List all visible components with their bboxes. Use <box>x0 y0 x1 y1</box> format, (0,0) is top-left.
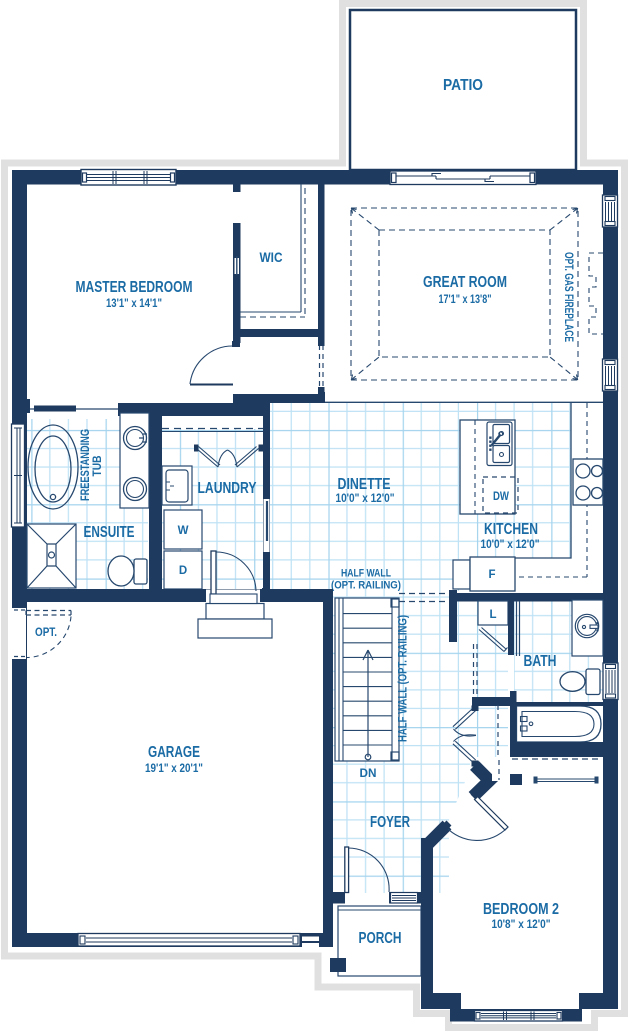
svg-text:F: F <box>488 569 495 581</box>
svg-text:OPT.: OPT. <box>35 627 57 639</box>
svg-text:10'0" x 12'0": 10'0" x 12'0" <box>481 539 540 551</box>
svg-text:DINETTE: DINETTE <box>338 476 391 493</box>
svg-text:PATIO: PATIO <box>443 77 483 94</box>
svg-text:D: D <box>179 565 187 577</box>
svg-text:FOYER: FOYER <box>370 814 410 831</box>
svg-text:W: W <box>178 525 189 537</box>
svg-text:BEDROOM 2: BEDROOM 2 <box>483 901 559 918</box>
svg-text:FREESTANDING: FREESTANDING <box>80 429 92 501</box>
svg-text:DW: DW <box>493 491 509 503</box>
svg-text:L: L <box>489 609 496 621</box>
svg-text:WIC: WIC <box>260 250 283 265</box>
svg-text:19'1" x 20'1": 19'1" x 20'1" <box>145 763 203 775</box>
svg-text:TUB: TUB <box>92 456 104 477</box>
svg-text:GARAGE: GARAGE <box>148 744 200 761</box>
svg-text:BATH: BATH <box>524 653 557 670</box>
svg-text:PORCH: PORCH <box>359 930 402 947</box>
svg-text:GREAT ROOM: GREAT ROOM <box>423 274 507 291</box>
svg-text:KITCHEN: KITCHEN <box>484 521 538 538</box>
svg-text:10'8" x 12'0": 10'8" x 12'0" <box>492 919 551 931</box>
svg-text:ENSUITE: ENSUITE <box>84 524 135 541</box>
svg-text:17'1" x 13'8": 17'1" x 13'8" <box>439 294 492 306</box>
svg-text:LAUNDRY: LAUNDRY <box>198 480 258 497</box>
svg-text:13'1" x 14'1": 13'1" x 14'1" <box>106 298 162 310</box>
svg-text:10'0" x 12'0": 10'0" x 12'0" <box>336 493 395 505</box>
svg-text:HALF WALL (OPT. RAILING): HALF WALL (OPT. RAILING) <box>396 615 410 742</box>
svg-text:DN: DN <box>360 768 377 780</box>
svg-text:MASTER BEDROOM: MASTER BEDROOM <box>76 279 193 296</box>
svg-text:(OPT. RAILING): (OPT. RAILING) <box>331 580 401 592</box>
svg-text:OPT. GAS FIREPLACE: OPT. GAS FIREPLACE <box>562 252 574 342</box>
svg-text:HALF WALL: HALF WALL <box>341 568 391 580</box>
